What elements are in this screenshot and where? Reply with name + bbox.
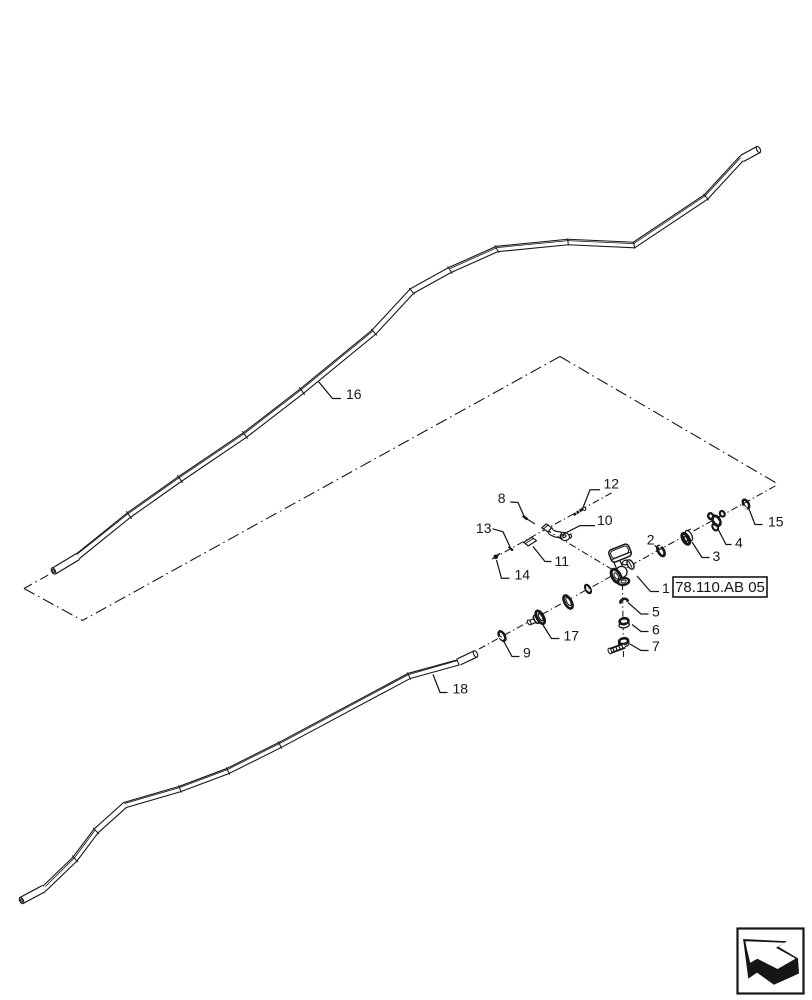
svg-text:18: 18 — [453, 681, 469, 697]
svg-text:16: 16 — [346, 386, 362, 402]
svg-text:7: 7 — [652, 638, 660, 654]
svg-text:9: 9 — [523, 645, 531, 661]
svg-text:14: 14 — [515, 567, 531, 583]
svg-text:4: 4 — [735, 535, 743, 551]
svg-text:5: 5 — [652, 604, 660, 620]
svg-text:2: 2 — [647, 532, 655, 548]
svg-text:10: 10 — [597, 512, 613, 528]
svg-text:6: 6 — [652, 622, 660, 638]
svg-text:17: 17 — [564, 628, 580, 644]
svg-text:1: 1 — [662, 580, 670, 596]
svg-text:8: 8 — [498, 490, 506, 506]
svg-text:13: 13 — [476, 520, 492, 536]
svg-text:12: 12 — [604, 476, 620, 492]
svg-text:3: 3 — [713, 548, 721, 564]
svg-text:78.110.AB 05: 78.110.AB 05 — [675, 579, 765, 596]
svg-text:15: 15 — [768, 514, 784, 530]
svg-text:11: 11 — [555, 553, 570, 569]
